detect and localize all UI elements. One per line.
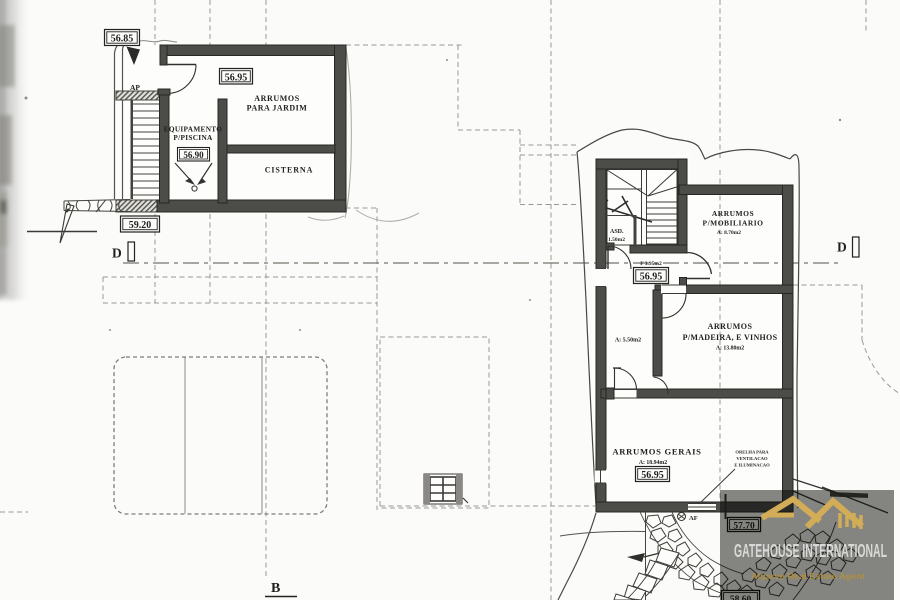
svg-text:GATEHOUSE INTERNATIONAL: GATEHOUSE INTERNATIONAL (734, 541, 887, 561)
svg-text:A: 8.70m2: A: 8.70m2 (717, 230, 741, 236)
svg-text:56.90: 56.90 (183, 150, 204, 160)
svg-text:AP: AP (130, 83, 140, 92)
svg-text:AF: AF (689, 515, 698, 522)
svg-text:ARRUMOS: ARRUMOS (712, 209, 754, 218)
svg-text:ARRUMOS: ARRUMOS (254, 94, 300, 103)
svg-text:ARRUMOS GERAIS: ARRUMOS GERAIS (612, 447, 701, 457)
svg-text:ASD.: ASD. (610, 229, 624, 235)
svg-text:1.50m2: 1.50m2 (608, 237, 625, 243)
svg-text:56.95: 56.95 (225, 73, 248, 84)
svg-text:56.85: 56.85 (111, 34, 134, 45)
svg-text:56.95: 56.95 (640, 272, 663, 283)
svg-text:B: B (271, 581, 280, 596)
svg-text:PARA JARDIM: PARA JARDIM (247, 104, 308, 113)
svg-text:ARRUMOS: ARRUMOS (708, 322, 753, 331)
svg-text:P/MOBILIARIO: P/MOBILIARIO (702, 219, 763, 228)
svg-text:ORELHA PARA: ORELHA PARA (735, 450, 769, 455)
svg-text:A: 5.50m2: A: 5.50m2 (615, 338, 641, 344)
svg-text:CISTERNA: CISTERNA (265, 166, 314, 175)
svg-text:Algarve Real Estate Agent: Algarve Real Estate Agent (751, 571, 865, 581)
svg-text:59.20: 59.20 (129, 220, 152, 231)
svg-text:VENTILACAO: VENTILACAO (736, 456, 768, 461)
svg-text:A: 18.94m2: A: 18.94m2 (639, 460, 667, 466)
svg-text:E ILUMINACAO: E ILUMINACAO (734, 463, 770, 468)
svg-text:F 3.95m2: F 3.95m2 (640, 261, 662, 267)
svg-text:56.95: 56.95 (641, 470, 664, 481)
svg-text:P/PISCINA: P/PISCINA (173, 133, 213, 142)
svg-text:D: D (112, 246, 122, 261)
svg-text:D: D (837, 240, 847, 255)
svg-text:A: 13.80m2: A: 13.80m2 (716, 346, 744, 352)
svg-text:P/MADEIRA, E VINHOS: P/MADEIRA, E VINHOS (683, 333, 778, 342)
